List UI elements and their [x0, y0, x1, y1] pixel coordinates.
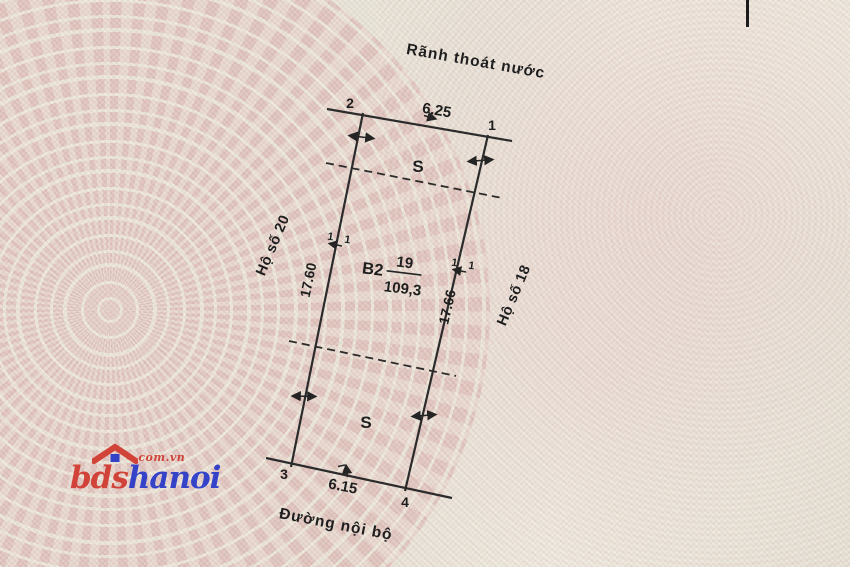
plot-code: B2: [361, 259, 384, 279]
plot-lot-number: 19: [395, 254, 414, 273]
household-20-label: Hộ số 20: [253, 213, 293, 279]
dimension-left: 17.60: [297, 261, 320, 299]
offset-label: 1: [468, 260, 476, 273]
width-arrow-top-left-icon: [349, 136, 374, 139]
offset-label: 1: [344, 234, 352, 247]
bdshanoi-watermark: .com.vn bdshanoi: [70, 442, 210, 504]
dimension-bottom: 6.15: [327, 475, 359, 497]
corner-point-2: 2: [346, 95, 354, 111]
width-arrow-bottom-left-icon: [292, 396, 316, 397]
plot-id-group: B2 19 109,3: [359, 249, 425, 299]
corner-point-4: 4: [401, 494, 409, 510]
section-label-top: S: [412, 157, 423, 176]
offset-arrow-right-icon: [453, 270, 466, 273]
household-18-label: Hộ số 18: [494, 263, 534, 329]
watermark-brand: bdshanoi: [70, 460, 220, 496]
drainage-label: Rãnh thoát nước: [405, 41, 546, 82]
corner-point-1: 1: [488, 117, 496, 133]
scanned-land-plot-diagram: 1 1 1 1 2 1 3 4 6.25 6.15 17.60 17.66 S …: [0, 0, 850, 567]
plot-area: 109,3: [383, 278, 422, 299]
dimension-right: 17.66: [435, 288, 459, 326]
offset-label: 1: [327, 231, 335, 244]
tick-dash-bottom: [338, 465, 345, 467]
corner-point-3: 3: [280, 466, 288, 482]
watermark-brand-red: bds: [70, 460, 128, 496]
width-arrow-top-right-icon: [468, 160, 493, 162]
dimension-top: 6.25: [421, 100, 453, 122]
fraction-bar: [387, 271, 422, 275]
internal-road-label: Đường nội bộ: [278, 505, 394, 544]
plot-edge-bottom: [266, 458, 452, 498]
width-arrow-bottom-right-icon: [412, 415, 436, 417]
section-label-bottom: S: [360, 413, 371, 432]
watermark-brand-blue: hanoi: [128, 460, 221, 496]
